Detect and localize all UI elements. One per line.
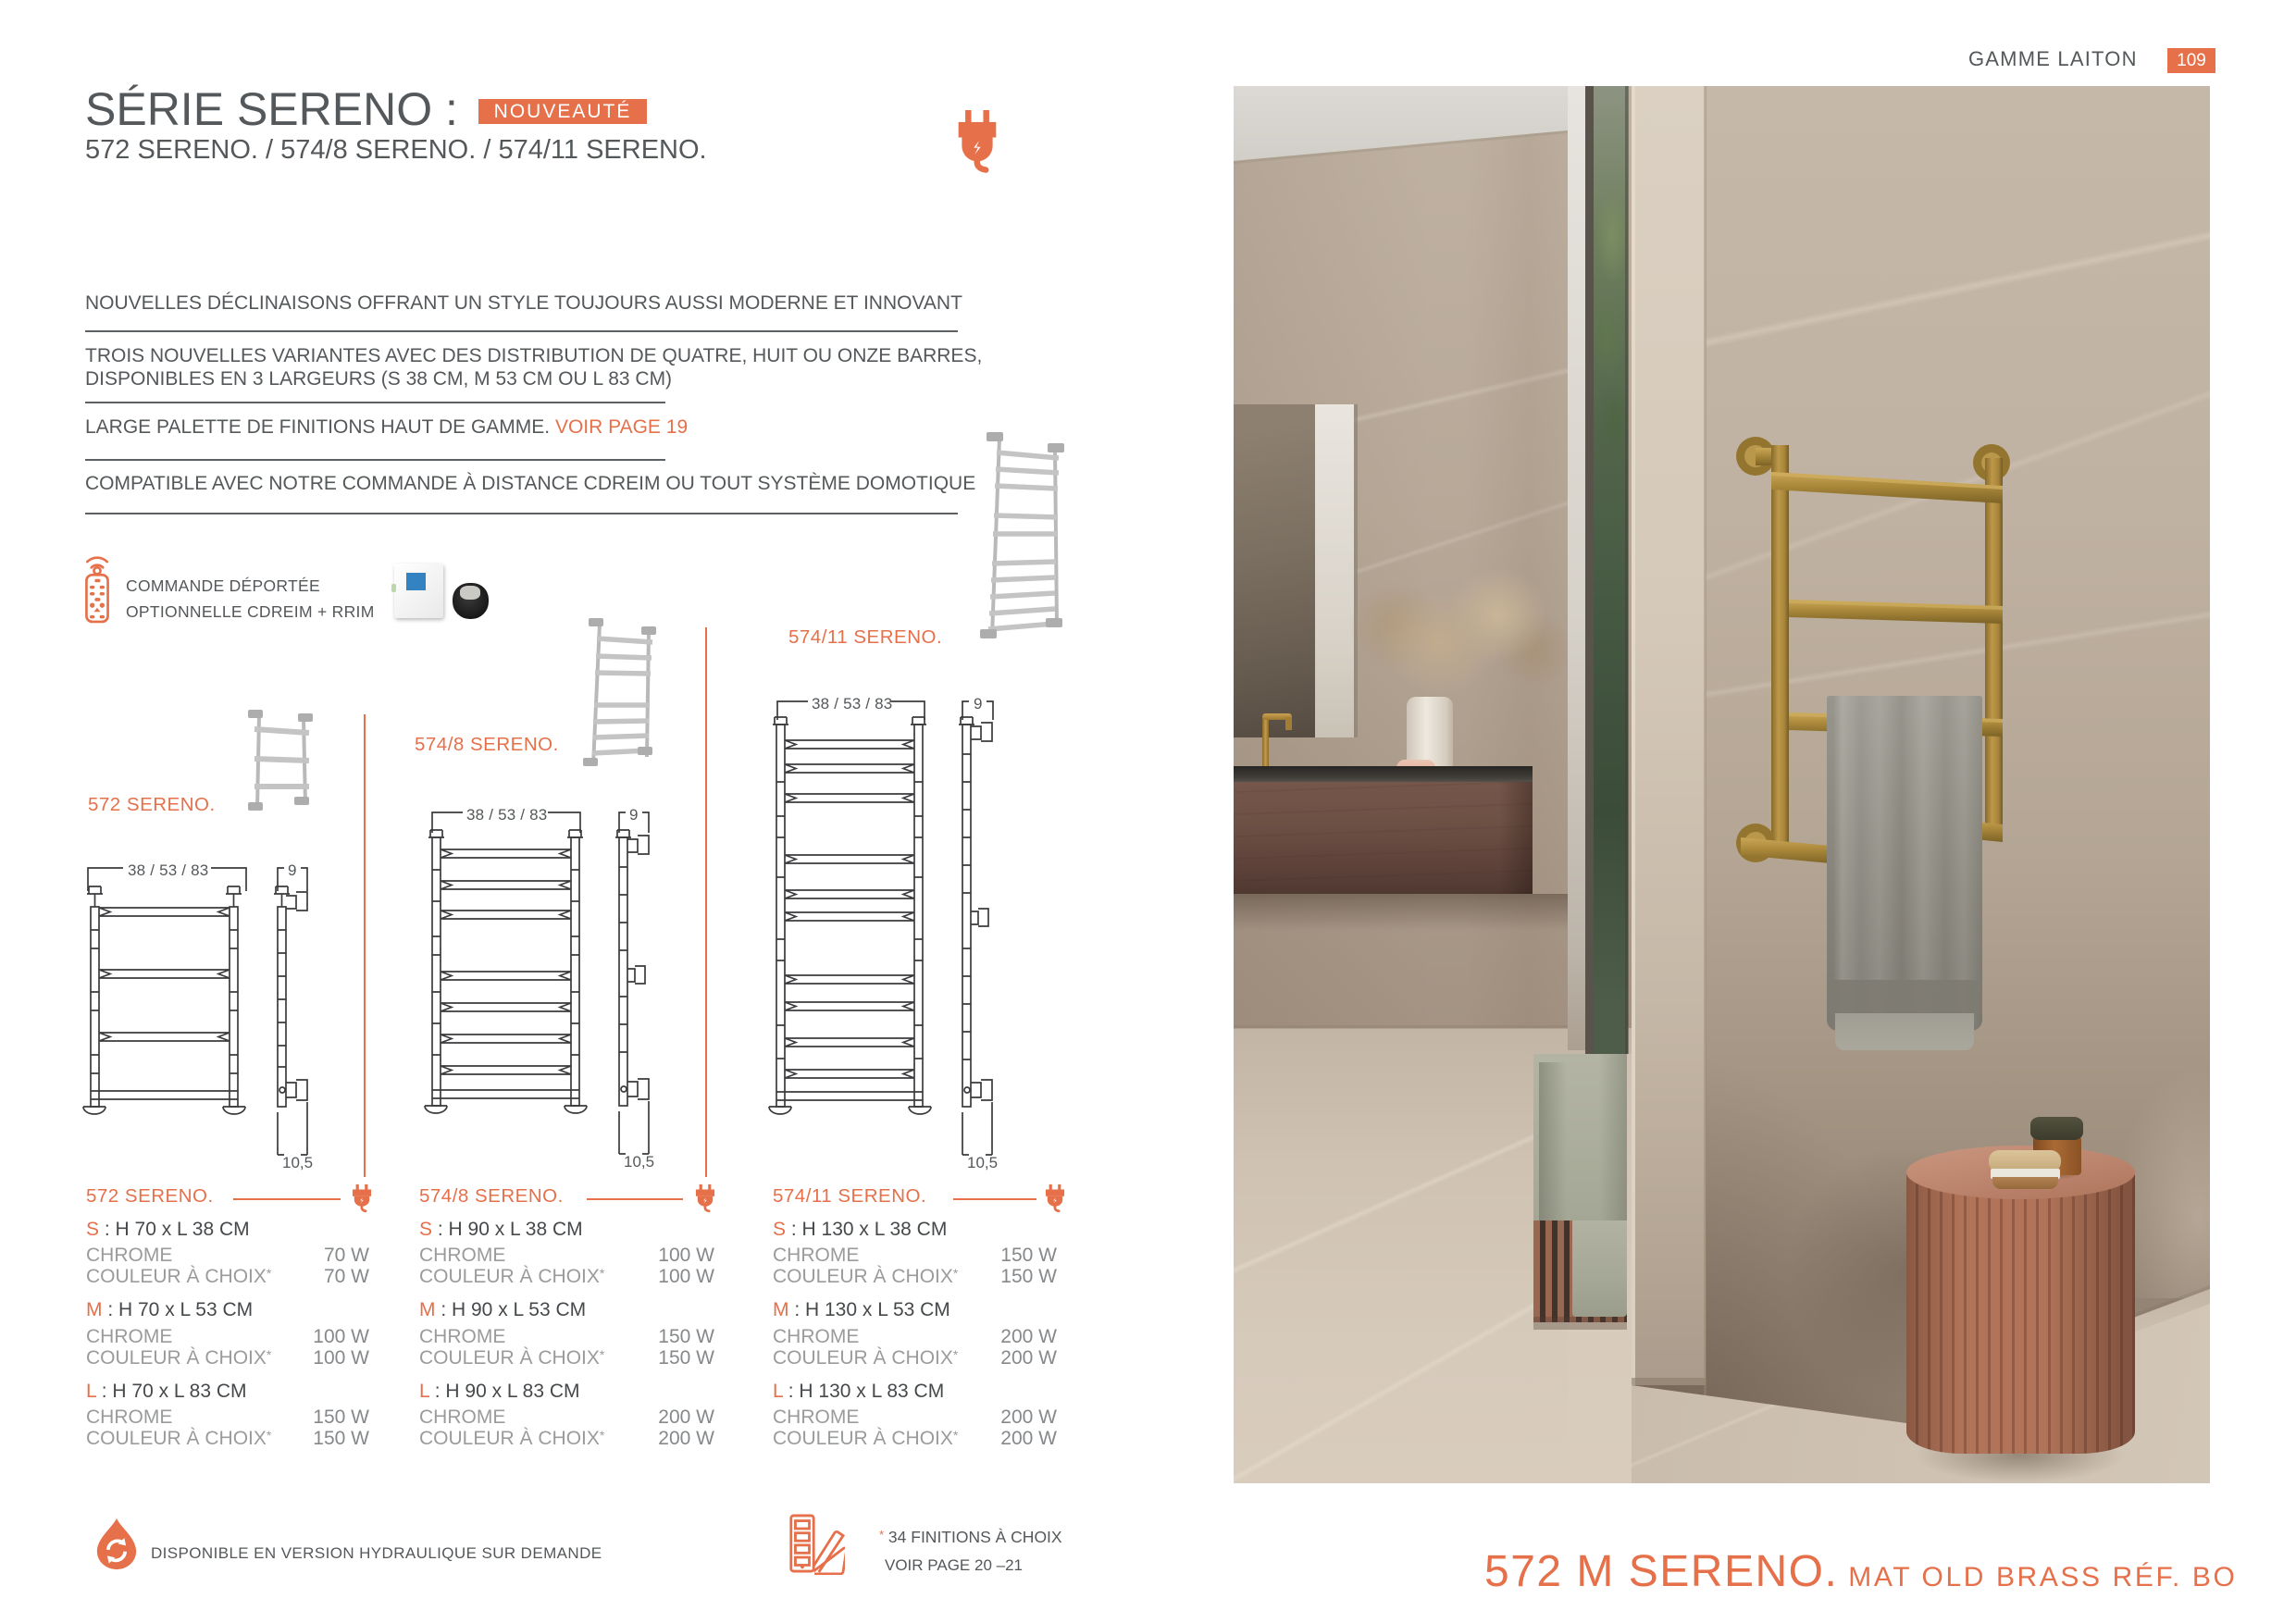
svg-text:38 / 53 / 83: 38 / 53 / 83	[812, 695, 892, 712]
svg-text:38 / 53 / 83: 38 / 53 / 83	[466, 806, 547, 824]
svg-text:10,5: 10,5	[624, 1153, 654, 1171]
svg-text:38 / 53 / 83: 38 / 53 / 83	[128, 861, 208, 879]
svg-text:9: 9	[288, 861, 296, 879]
svg-text:9: 9	[974, 695, 982, 712]
svg-text:9: 9	[629, 806, 638, 824]
svg-text:10,5: 10,5	[282, 1154, 313, 1171]
svg-text:10,5: 10,5	[967, 1154, 998, 1171]
